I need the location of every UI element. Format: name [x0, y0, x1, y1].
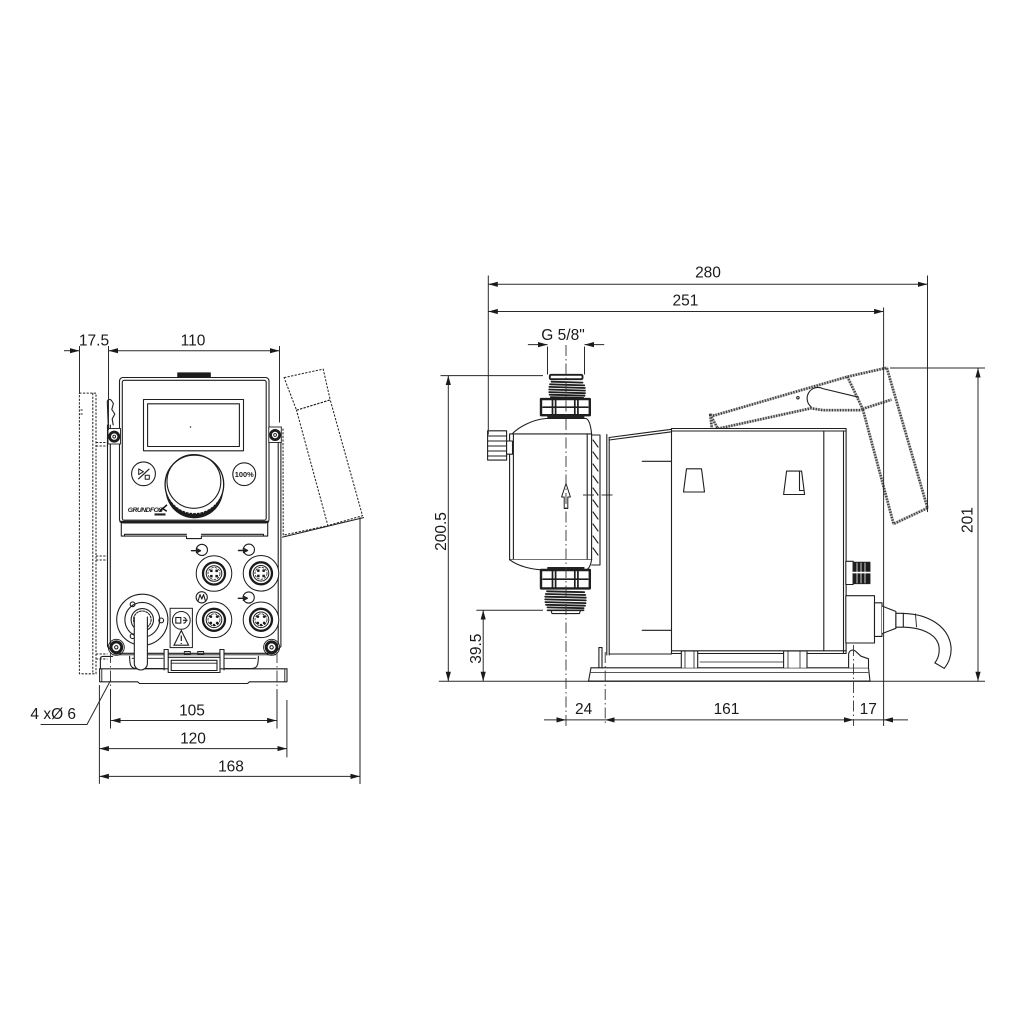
- svg-text:17: 17: [860, 701, 877, 718]
- svg-text:100%: 100%: [235, 470, 254, 479]
- svg-text:G 5/8": G 5/8": [541, 327, 584, 344]
- svg-text:251: 251: [672, 293, 698, 310]
- svg-text:120: 120: [180, 731, 206, 748]
- svg-text:201: 201: [960, 507, 977, 533]
- svg-text:GRUNDFOS: GRUNDFOS: [128, 507, 164, 514]
- svg-text:200.5: 200.5: [433, 512, 450, 551]
- svg-text:17.5: 17.5: [79, 333, 109, 350]
- svg-text:4 xØ 6: 4 xØ 6: [30, 706, 76, 723]
- svg-text:280: 280: [695, 265, 721, 282]
- svg-text:24: 24: [575, 701, 593, 718]
- svg-text:105: 105: [179, 703, 205, 720]
- svg-text:161: 161: [714, 701, 740, 718]
- svg-text:168: 168: [218, 758, 244, 775]
- svg-text:110: 110: [181, 333, 206, 350]
- svg-text:39.5: 39.5: [468, 634, 485, 664]
